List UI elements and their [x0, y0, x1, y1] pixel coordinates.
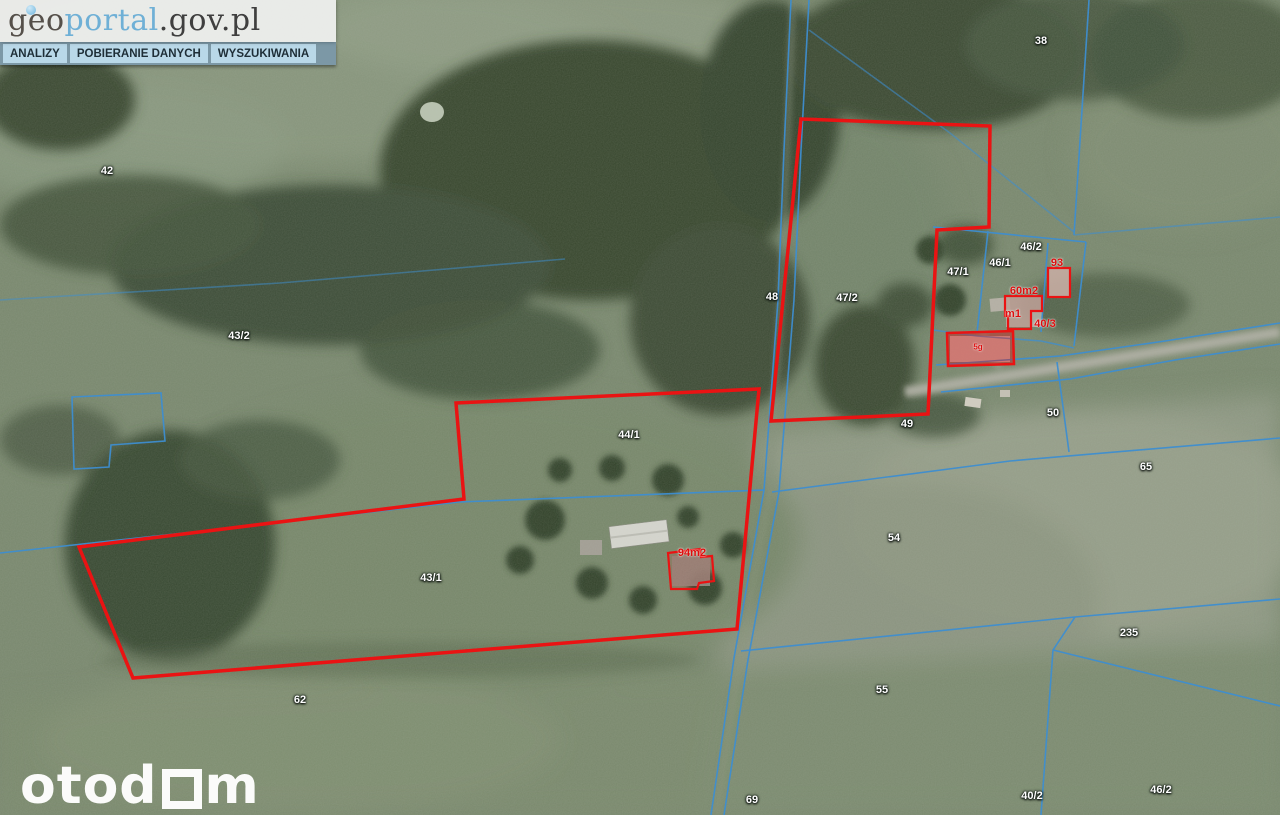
- highlighted-building-center: [668, 549, 714, 589]
- cadastral-lines: [0, 0, 1280, 815]
- menu-item-analizy[interactable]: ANALIZY: [3, 44, 67, 63]
- highlighted-building-93: [1048, 268, 1070, 297]
- menu-item-wyszukiwania[interactable]: WYSZUKIWANIA: [211, 44, 316, 63]
- logo-text-geo: geo: [8, 3, 65, 38]
- otodom-watermark: otodm: [20, 756, 260, 815]
- logo-text-suffix: .gov.pl: [159, 3, 261, 38]
- highlighted-parcel-north: [771, 119, 990, 421]
- highlighted-building-barn: [947, 331, 1014, 366]
- highlighted-parcel-south: [79, 389, 759, 678]
- map-stage[interactable]: 4243/2384847/247/146/146/244/143/1495065…: [0, 0, 1280, 815]
- header-menu: ANALIZYPOBIERANIE DANYCHWYSZUKIWANIA: [0, 42, 336, 65]
- highlighted-building-60m2: [1005, 296, 1042, 329]
- square-glyph-icon: [162, 769, 202, 809]
- highlighted-buildings: [668, 268, 1070, 589]
- cadastral-overlay: [0, 0, 1280, 815]
- geoportal-header: geoportal.gov.pl ANALIZYPOBIERANIE DANYC…: [0, 0, 336, 65]
- geoportal-logo[interactable]: geoportal.gov.pl: [0, 0, 336, 42]
- logo-text-portal: portal: [65, 3, 159, 38]
- highlighted-parcels: [79, 119, 990, 678]
- menu-item-pobieranie-danych[interactable]: POBIERANIE DANYCH: [70, 44, 208, 63]
- watermark-text-prefix: otod: [20, 756, 158, 815]
- watermark-text-suffix: m: [205, 756, 260, 815]
- logo-dot-icon: [26, 5, 36, 15]
